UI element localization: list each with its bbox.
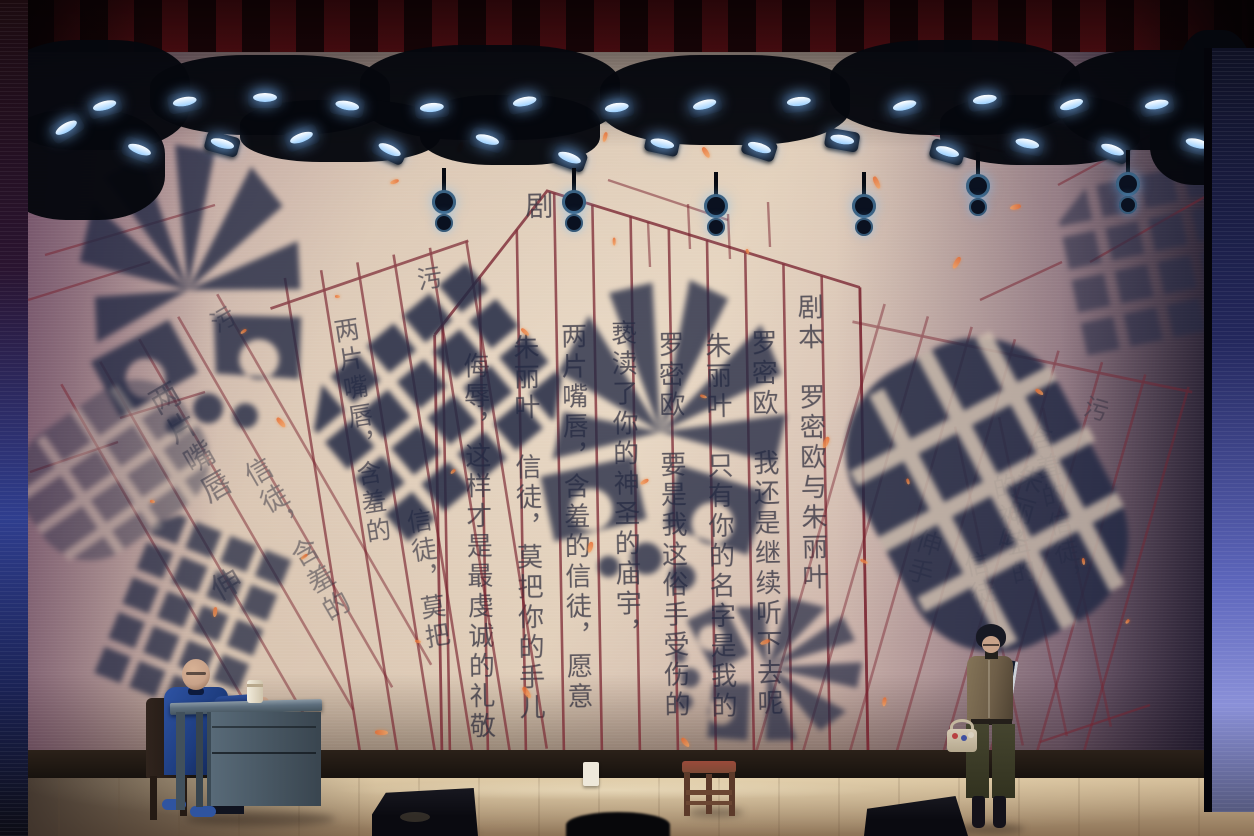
stage-light-truss [0,0,1254,260]
ember-fleck [150,500,155,504]
desk-leg [196,712,203,807]
actress-blouse-placket [988,660,990,718]
light-lens-ring [432,190,456,214]
light-lens-ring [1119,196,1137,214]
blue-cloth-shoe [190,806,216,817]
light-lens-ring [855,218,873,236]
moving-head-light [248,88,282,110]
hanging-moving-head-light [848,172,880,238]
basket-contents [952,733,958,739]
hanging-moving-head-light [962,152,994,218]
moving-head-light [781,90,817,115]
desk-drawer-line [212,752,316,754]
red-chair-rung [686,801,732,805]
light-lens-ring [969,198,987,216]
moving-head-light [414,97,450,122]
boot-print-shadow-radial [516,253,804,611]
light-lens-ring [966,174,990,198]
light-lens-ring [562,190,586,214]
light-lens-ring [852,194,876,218]
stage-photo: 剧本 罗密欧与朱丽叶罗密欧 我还是继续听下去呢朱丽叶 只有你的名字是我的罗密欧 … [0,0,1254,836]
actress-reflection [958,824,1024,834]
mug-lid [247,684,263,687]
desk-drawer-line [212,726,316,728]
hanging-moving-head-light [1112,150,1144,216]
actress-glasses [983,644,999,646]
moving-head-light [823,127,860,155]
audience-head-silhouette [566,812,670,836]
basket-contents [961,735,967,741]
white-box-prop [583,762,599,786]
desk-leg [176,712,185,810]
actress-boot [972,796,985,828]
light-lens-ring [435,214,453,232]
chair-leg [150,776,157,820]
hanging-moving-head-light [700,172,732,238]
light-lens-ring [707,218,725,236]
moving-head-light [967,88,1004,115]
light-lens-ring [565,214,583,232]
stage-left-edge-glow [0,0,28,836]
actress-blouse [967,656,1013,722]
stage-right-led-strip [1212,48,1254,812]
seated-actor-glasses [186,672,206,675]
monitor-speaker-left [372,788,478,836]
red-wooden-chair-seat [682,761,736,773]
basket-contents [968,732,974,738]
moving-head-light [599,96,636,123]
light-lens [253,93,277,102]
actress-boot [993,796,1006,828]
light-lens-ring [1116,172,1140,196]
speaker-logo [400,812,430,822]
red-chair-rung [686,790,732,795]
hanging-moving-head-light [428,168,460,234]
hanging-moving-head-light [558,168,590,234]
actress-trouser-leg [992,724,1015,798]
ember-fleck [335,295,340,298]
light-lens-ring [704,194,728,218]
